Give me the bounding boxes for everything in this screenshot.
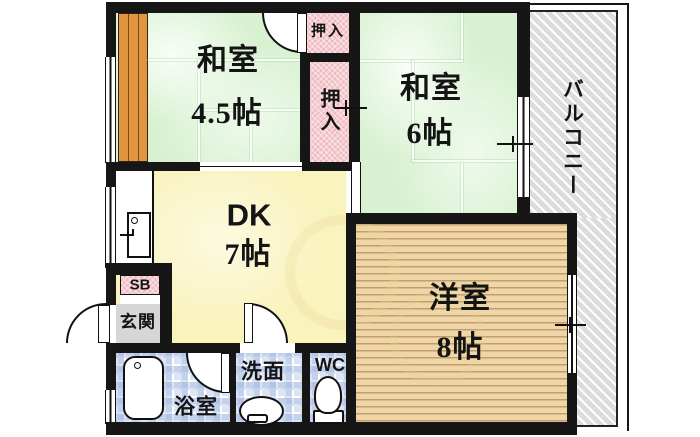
label-closet-upper: 押入: [311, 25, 345, 40]
label-washitsu45-name: 和室: [197, 46, 259, 76]
tatami-line: [461, 162, 463, 213]
floor-plan: 和室 4.5帖 押入 押入 和室 6帖 バルコニー DK 7帖 洋室 8帖 SB…: [0, 0, 700, 437]
wall-entrance-right: [160, 263, 172, 353]
room-washitsu-6: [360, 13, 517, 213]
room-youshitsu-8: [356, 224, 567, 422]
entrance-step: [120, 295, 160, 304]
outer-frame-top: [530, 3, 629, 5]
wall-youshitsu-top: [346, 213, 577, 224]
label-washroom: 洗面: [241, 362, 285, 383]
wall-washitsu6-balcony: [517, 13, 530, 97]
door-leaf-dk: [244, 303, 253, 343]
bathtub-drain-icon: [134, 362, 141, 369]
wall-closet-right: [349, 2, 360, 162]
balcony-border-right: [616, 10, 618, 427]
balcony-border-top: [530, 10, 618, 12]
balcony-area-lower: [577, 218, 618, 427]
wall-left: [106, 2, 116, 57]
window-left-kitchen: [105, 187, 116, 268]
wall-top: [106, 2, 530, 13]
label-youshitsu-name: 洋室: [429, 284, 491, 314]
label-bathroom: 浴室: [174, 397, 218, 418]
door-leaf-bathroom: [221, 353, 230, 393]
outer-frame-right: [627, 3, 629, 431]
dim-mark: [512, 136, 514, 152]
label-washitsu6-area: 6帖: [407, 119, 454, 149]
washbasin-counter-icon: [247, 414, 268, 423]
door-leaf-washitsu45: [297, 13, 307, 53]
label-shoebox: SB: [130, 278, 151, 293]
wall-youshitsu-balcony: [567, 213, 577, 275]
dk-door-opening: [240, 343, 295, 353]
label-entrance: 玄関: [120, 314, 156, 331]
engawa-wood-strip: [118, 13, 148, 162]
kitchen-spout-icon: [132, 229, 134, 236]
kitchen-faucet-icon: [131, 217, 138, 224]
bathtub-icon: [123, 356, 164, 420]
dim-mark: [345, 100, 347, 116]
wall-youshitsu-balcony: [567, 373, 577, 425]
label-dk-name: DK: [227, 200, 272, 231]
label-closet-lower: 押入: [318, 88, 338, 134]
wall-youshitsu-left: [346, 213, 356, 425]
toilet-bowl-icon: [314, 376, 342, 414]
wall-dk-bottom: [106, 343, 346, 353]
label-balcony: バルコニー: [562, 78, 583, 198]
label-dk-area: 7帖: [225, 240, 272, 270]
label-washitsu6-name: 和室: [400, 74, 462, 104]
window-left-washitsu: [105, 57, 116, 163]
sliding-door-washitsu45-dk: [200, 162, 302, 171]
dim-mark: [569, 317, 571, 333]
label-toilet: WC: [315, 356, 345, 374]
dim-mark: [497, 143, 533, 145]
label-youshitsu-area: 8帖: [437, 333, 484, 363]
balcony-border-bottom: [577, 425, 618, 427]
window-left-bathroom: [105, 390, 116, 424]
sliding-door-dk-washitsu6: [351, 162, 361, 214]
tatami-line: [412, 160, 517, 162]
label-washitsu45-area: 4.5帖: [191, 99, 263, 129]
wall-washroom-toilet: [302, 353, 310, 422]
wall-bath-washroom: [230, 353, 236, 422]
wall-closet-left: [300, 53, 310, 162]
door-leaf-entrance: [98, 305, 110, 343]
window-washitsu6-balcony: [517, 97, 530, 197]
tatami-line: [461, 13, 463, 61]
